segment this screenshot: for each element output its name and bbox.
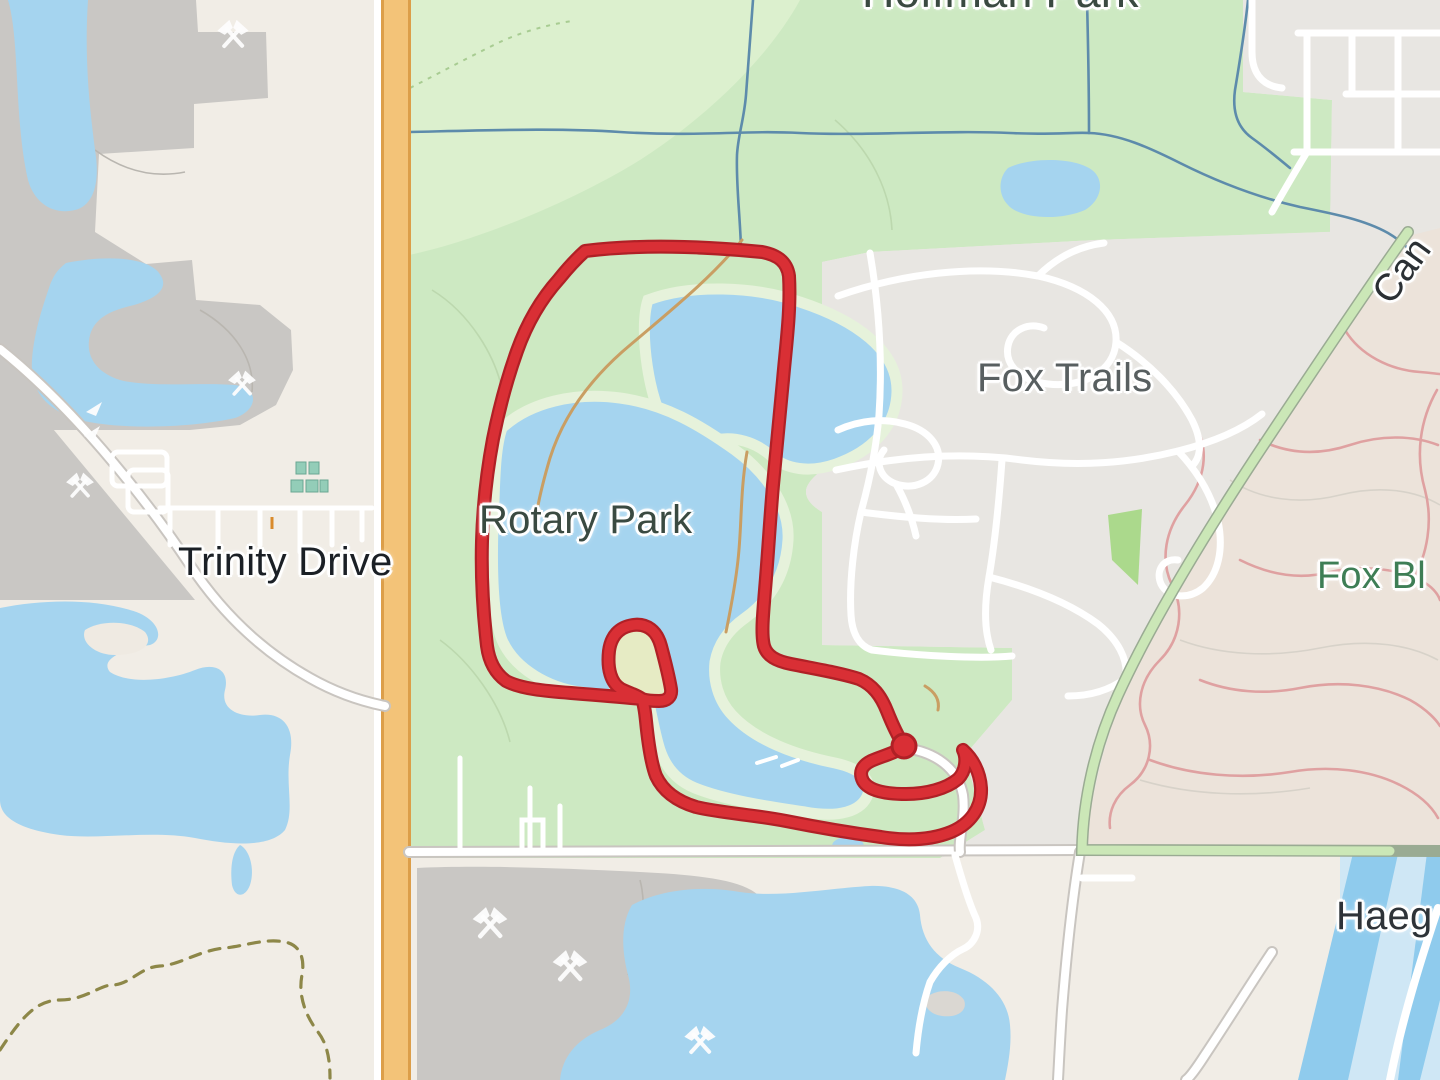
label-rotary-park: Rotary Park [479, 500, 692, 540]
label-fox-bluff: Fox Bl [1317, 557, 1426, 595]
label-haegers: Haeg [1336, 896, 1432, 936]
map-canvas[interactable]: Hoffman Park Rotary Park Fox Trails Trin… [0, 0, 1440, 1080]
label-trinity-drive: Trinity Drive [178, 542, 392, 582]
hoffman-pond [1001, 160, 1101, 217]
route-endpoint-marker [892, 734, 916, 758]
label-fox-trails: Fox Trails [977, 358, 1152, 398]
label-hoffman-park: Hoffman Park [862, 0, 1139, 14]
